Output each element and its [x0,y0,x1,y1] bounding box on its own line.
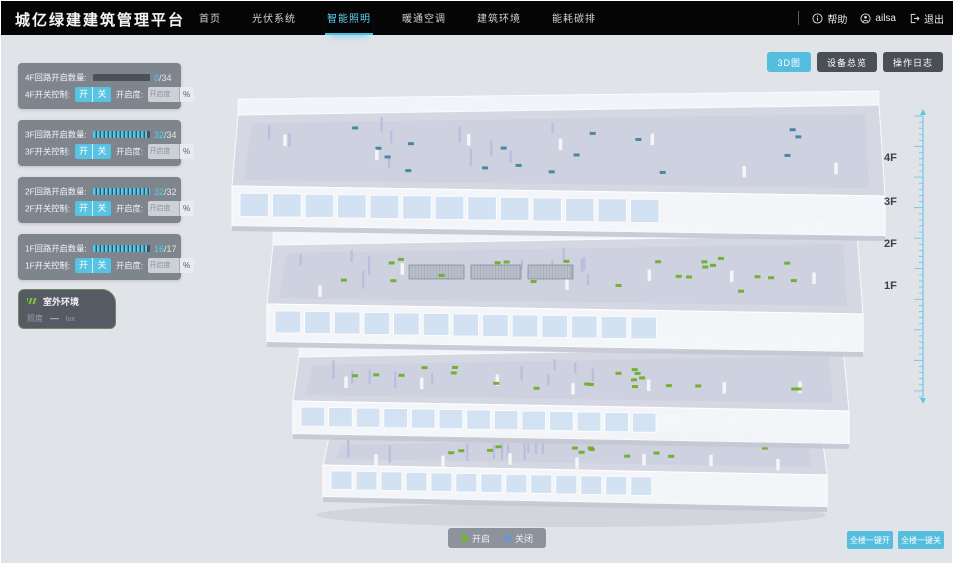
circuit-count-label: 3F回路开启数量: [25,129,87,141]
switch-on-button[interactable]: 开 [75,87,93,102]
help-label: 帮助 [827,11,847,26]
dimming-input[interactable] [148,87,179,102]
switch-group: 开 关 [75,87,111,102]
dimming-input-group: % [148,144,194,159]
user-icon [860,13,871,24]
logout-link[interactable]: 退出 [909,11,944,26]
dimming-input[interactable] [148,201,179,216]
percent-apply-button[interactable]: % [179,201,194,216]
circuit-progress-bar [93,188,150,195]
header-actions: 帮助 ailsa 退出 [798,1,944,35]
legend-off-swatch [504,535,511,542]
dimming-label: 开启度: [116,203,143,215]
legend-on: 开启 [461,532,490,545]
switch-group: 开 关 [75,201,111,216]
switch-off-button[interactable]: 关 [93,87,111,102]
circuit-count-value: 32/32 [154,187,177,197]
view-3d-button[interactable]: 3D图 [767,52,811,72]
switch-off-button[interactable]: 关 [93,258,111,273]
legend-on-swatch [461,535,468,542]
nav-item-building-env[interactable]: 建筑环境 [475,1,523,35]
operation-log-button[interactable]: 操作日志 [883,52,943,72]
circuit-count-label: 1F回路开启数量: [25,243,87,255]
circuit-count-value: 16/17 [154,244,177,254]
switch-off-button[interactable]: 关 [93,144,111,159]
percent-apply-button[interactable]: % [179,87,194,102]
circuit-progress-bar [93,131,150,138]
username-label: ailsa [875,13,896,24]
circuit-count-value: 0/34 [154,73,172,83]
main-nav: 首页 光伏系统 智能照明 暖通空调 建筑环境 能耗碳排 [197,1,598,35]
nav-item-home[interactable]: 首页 [197,1,223,35]
switch-group: 开 关 [75,144,111,159]
floor-panel-1f: 1F回路开启数量: 16/17 1F开关控制: 开 关 开启度: % [18,234,181,280]
nav-item-smart-lighting[interactable]: 智能照明 [325,1,373,35]
switch-control-label: 4F开关控制: [25,89,70,101]
dimming-label: 开启度: [116,89,143,101]
header-divider [798,11,799,25]
bulk-control-buttons: 全楼一键开 全楼一键关 [847,531,944,549]
nav-item-energy-carbon[interactable]: 能耗碳排 [550,1,598,35]
dimming-input[interactable] [148,258,179,273]
floor-label-1f: 1F [884,280,897,292]
switch-control-label: 3F开关控制: [25,146,70,158]
floor-panel-3f: 3F回路开启数量: 32/34 3F开关控制: 开 关 开启度: % [18,120,181,166]
circuit-count-value: 32/34 [154,130,177,140]
nav-item-pv-system[interactable]: 光伏系统 [250,1,298,35]
illuminance-value: — [50,313,59,323]
switch-on-button[interactable]: 开 [75,258,93,273]
switch-on-button[interactable]: 开 [75,144,93,159]
percent-apply-button[interactable]: % [179,258,194,273]
all-off-button[interactable]: 全楼一键关 [898,531,944,549]
outdoor-env-icon [27,296,39,307]
dimming-input[interactable] [148,144,179,159]
dimming-label: 开启度: [116,146,143,158]
circuit-count-label: 2F回路开启数量: [25,186,87,198]
switch-group: 开 关 [75,258,111,273]
switch-control-label: 2F开关控制: [25,203,70,215]
all-on-button[interactable]: 全楼一键开 [847,531,893,549]
floor-panel-2f: 2F回路开启数量: 32/32 2F开关控制: 开 关 开启度: % [18,177,181,223]
percent-apply-button[interactable]: % [179,144,194,159]
switch-off-button[interactable]: 关 [93,201,111,216]
top-header: 城亿绿建建筑管理平台 首页 光伏系统 智能照明 暖通空调 建筑环境 能耗碳排 帮… [1,1,953,35]
switch-on-button[interactable]: 开 [75,201,93,216]
dimming-input-group: % [148,258,194,273]
logout-icon [909,13,920,24]
switch-control-label: 1F开关控制: [25,260,70,272]
view-mode-buttons: 3D图 设备总览 操作日志 [767,52,943,72]
circuit-progress-bar [93,74,150,81]
legend-off: 关闭 [504,532,533,545]
outdoor-env-title: 室外环境 [43,295,79,308]
dimming-input-group: % [148,87,194,102]
illuminance-unit: lux [66,316,75,323]
dimming-input-group: % [148,201,194,216]
logout-label: 退出 [924,11,944,26]
device-overview-button[interactable]: 设备总览 [817,52,877,72]
floor-label-3f: 3F [884,196,897,208]
floor-label-4f: 4F [884,152,897,164]
help-link[interactable]: 帮助 [812,11,847,26]
nav-item-hvac[interactable]: 暖通空调 [400,1,448,35]
help-icon [812,13,823,24]
light-status-legend: 开启 关闭 [448,528,546,548]
floor-label-2f: 2F [884,238,897,250]
circuit-progress-bar [93,245,150,252]
floor-panel-4f: 4F回路开启数量: 0/34 4F开关控制: 开 关 开启度: % [18,63,181,109]
illuminance-label: 照度 [27,313,43,324]
brand-title: 城亿绿建建筑管理平台 [15,9,185,30]
outdoor-env-panel: 室外环境 照度 — lux [18,289,116,329]
user-menu[interactable]: ailsa [860,13,896,24]
circuit-count-label: 4F回路开启数量: [25,72,87,84]
dimming-label: 开启度: [116,260,143,272]
